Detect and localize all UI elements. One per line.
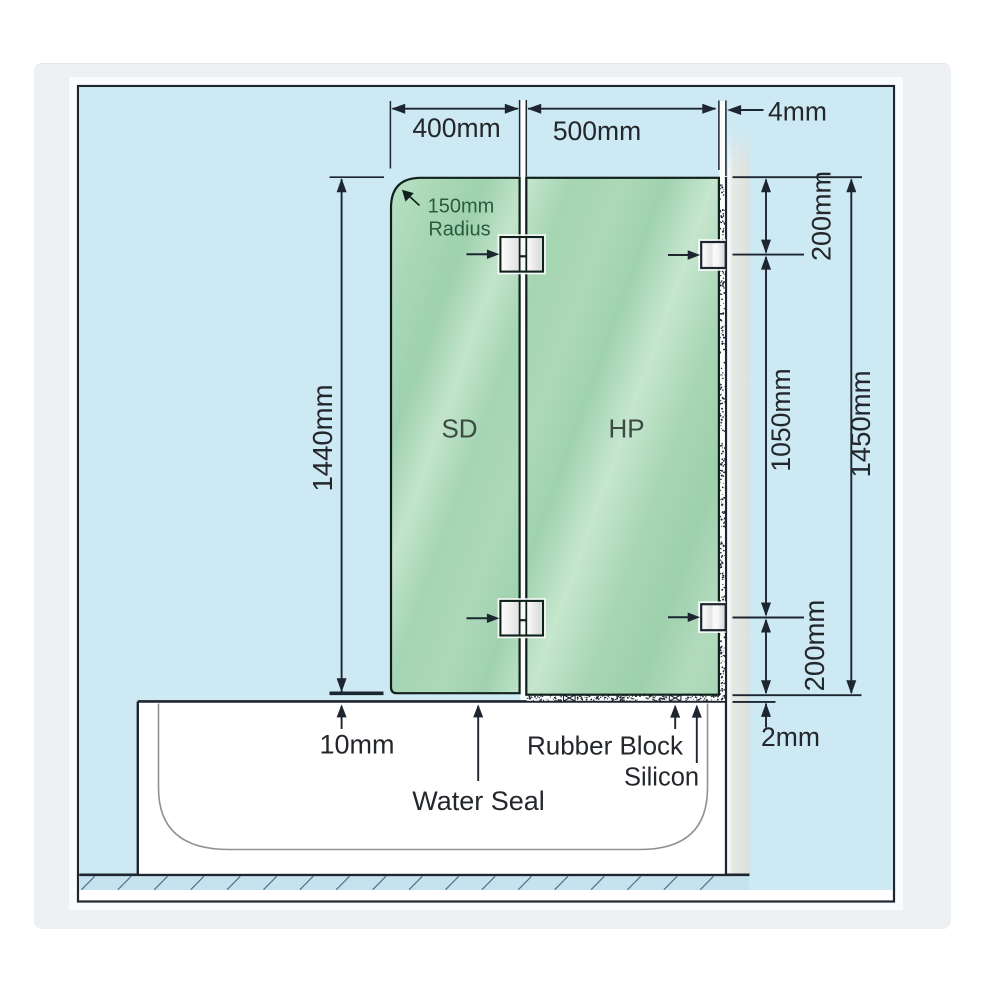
svg-text:SD: SD [441, 414, 477, 444]
svg-text:500mm: 500mm [553, 116, 641, 146]
svg-text:1440mm: 1440mm [307, 385, 338, 492]
svg-text:200mm: 200mm [799, 600, 830, 692]
svg-text:2mm: 2mm [761, 722, 820, 752]
svg-text:10mm: 10mm [319, 730, 394, 760]
svg-text:400mm: 400mm [412, 113, 500, 143]
svg-text:1050mm: 1050mm [766, 368, 796, 471]
svg-text:150mm: 150mm [428, 196, 495, 218]
svg-text:HP: HP [608, 414, 644, 444]
svg-text:1450mm: 1450mm [845, 371, 876, 478]
svg-text:200mm: 200mm [807, 171, 837, 261]
svg-text:Silicon: Silicon [624, 764, 699, 792]
svg-text:Radius: Radius [428, 219, 490, 241]
svg-text:Water Seal: Water Seal [412, 786, 545, 816]
svg-text:Rubber Block: Rubber Block [527, 731, 684, 761]
svg-text:4mm: 4mm [768, 97, 827, 127]
